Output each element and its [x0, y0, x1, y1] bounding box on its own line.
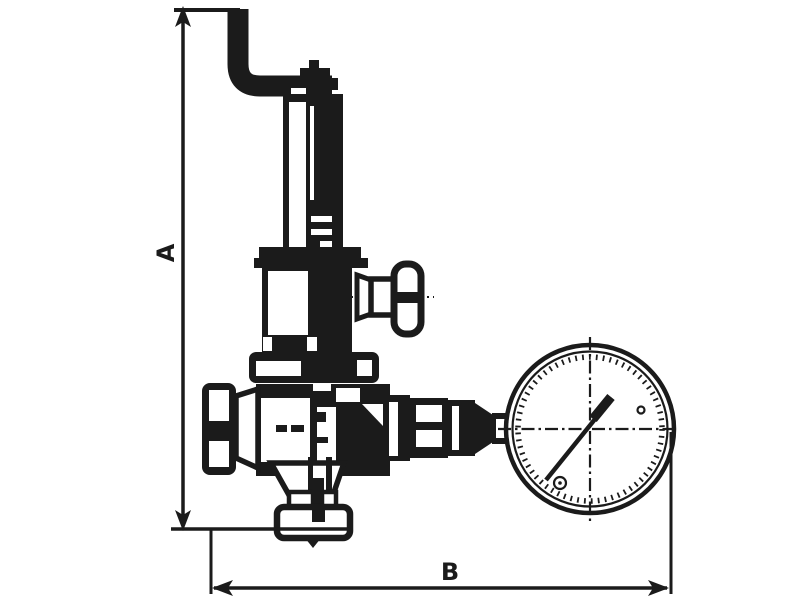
flow-arrow [305, 538, 321, 548]
dimension-a-label: A [152, 243, 180, 262]
drawing-canvas: A B [0, 0, 800, 598]
spring-bonnet [254, 94, 368, 268]
dimension-b-label: B [441, 558, 459, 586]
side-test-valve [338, 264, 434, 334]
gauge-dot-mark [638, 407, 645, 414]
bottom-outlet-fitting [271, 457, 350, 548]
inlet-knurled-knob [202, 383, 258, 475]
pressure-gauge [498, 337, 675, 522]
outlet-union-fittings [383, 395, 512, 461]
lower-flange [249, 352, 379, 383]
spring-housing [262, 266, 352, 352]
valve-technical-drawing: A B [0, 0, 800, 598]
